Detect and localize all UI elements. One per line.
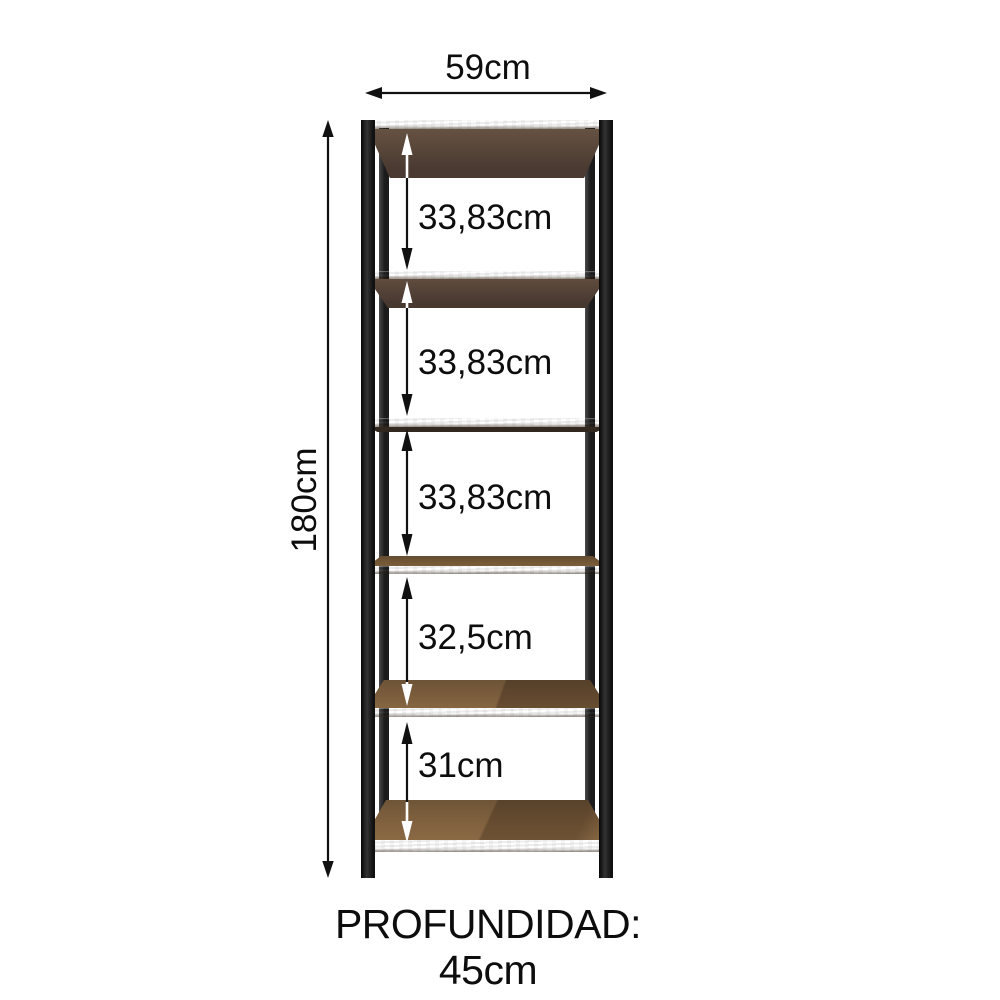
frame-post-back-left [379, 128, 389, 840]
shelf-1-underside [368, 129, 606, 178]
shelf-5-top [366, 680, 608, 708]
shelf-2-front-edge [368, 271, 606, 279]
frame-post-front-left [361, 120, 375, 878]
height-dimension-label: 180cm [285, 420, 325, 580]
gap-dimension-label-3: 33,83cm [418, 478, 552, 518]
shelf-2-underside [368, 279, 606, 308]
shelf-3-front-edge [368, 418, 606, 427]
gap-dimension-label-4: 32,5cm [418, 618, 533, 658]
frame-post-back-right [585, 128, 595, 840]
product-dimension-diagram: 59cm 180cm 33,83cm 33,83cm 33,83cm 32,5c… [0, 0, 1000, 1000]
shelf-5-front-edge [366, 708, 608, 717]
gap-dimension-arrow-3 [402, 429, 413, 556]
gap-dimension-label-1: 33,83cm [418, 198, 552, 238]
frame-post-front-right [599, 120, 613, 878]
gap-dimension-label-2: 33,83cm [418, 343, 552, 383]
shelf-1-front-edge [368, 120, 606, 129]
shelf-4-top [368, 556, 606, 566]
shelf-3-underside [368, 427, 606, 432]
width-dimension-label: 59cm [428, 48, 548, 88]
shelf-4-front-edge [368, 566, 606, 574]
width-dimension-arrow [365, 87, 607, 99]
gap-dimension-label-5: 31cm [418, 746, 504, 786]
depth-label: PROFUNDIDAD: 45cm [288, 901, 688, 993]
shelf-6-front-edge [363, 840, 611, 852]
shelf-6-top [363, 800, 611, 840]
